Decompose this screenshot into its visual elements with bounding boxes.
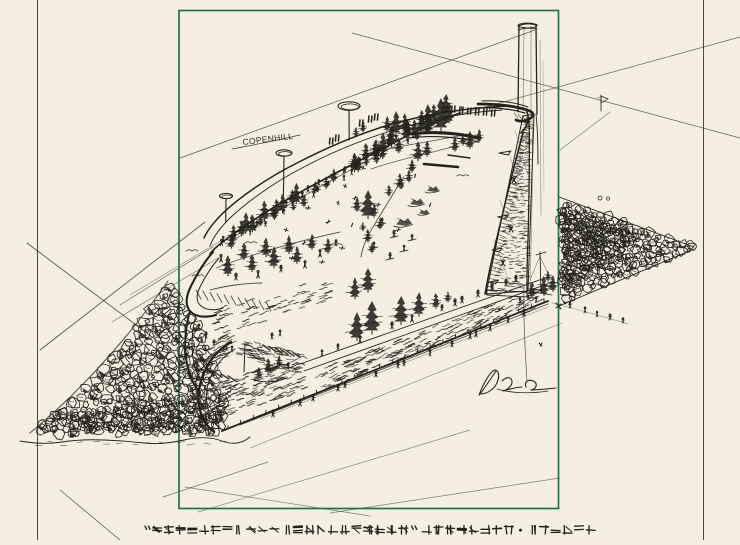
- svg-text:COPENHILL: COPENHILL: [242, 131, 294, 147]
